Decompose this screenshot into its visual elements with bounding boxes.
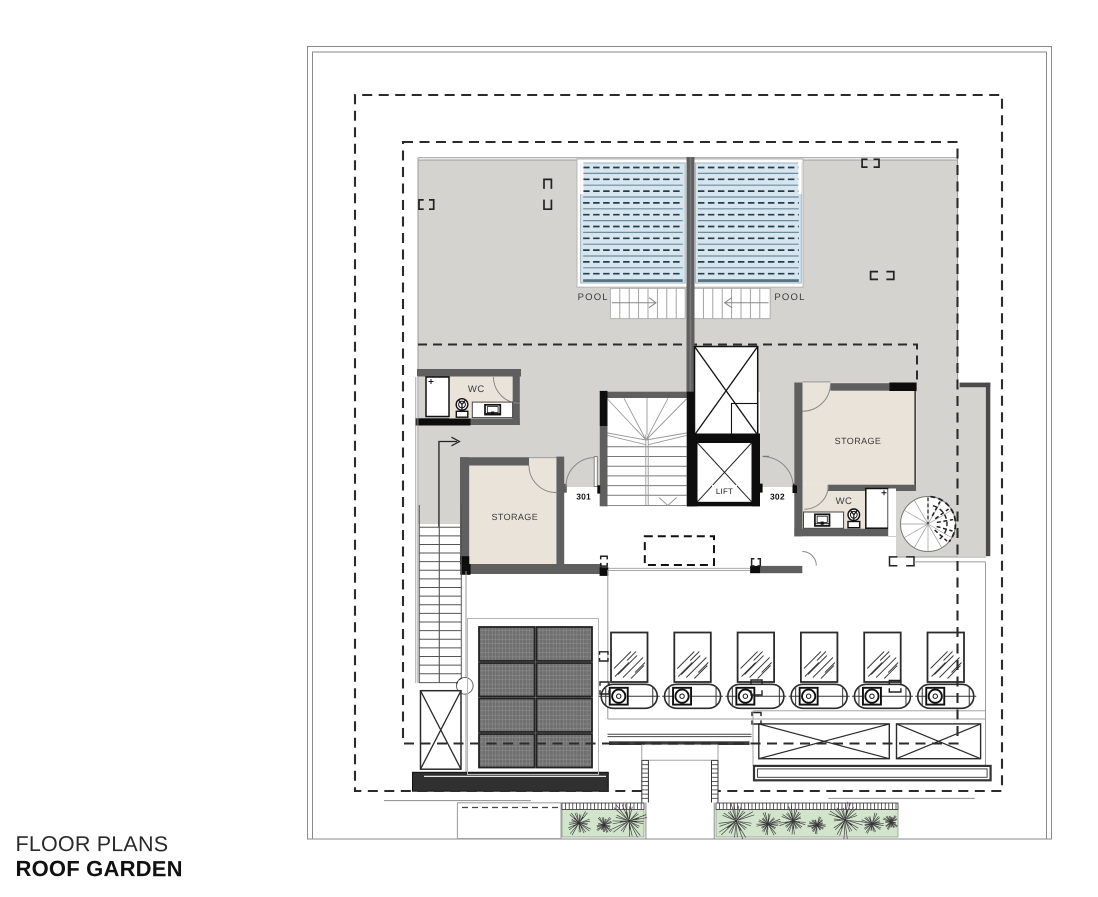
svg-text:STORAGE: STORAGE	[491, 512, 538, 522]
svg-text:WC: WC	[836, 496, 853, 507]
svg-text:FLOOR PLANS: FLOOR PLANS	[15, 832, 168, 856]
svg-text:ROOF GARDEN: ROOF GARDEN	[15, 856, 182, 881]
svg-text:STORAGE: STORAGE	[835, 436, 882, 446]
svg-text:302: 302	[770, 491, 785, 501]
svg-text:POOL: POOL	[774, 292, 805, 303]
svg-text:LIFT: LIFT	[716, 487, 733, 496]
svg-text:WC: WC	[468, 384, 485, 395]
svg-text:301: 301	[576, 491, 591, 501]
svg-text:POOL: POOL	[578, 292, 609, 303]
